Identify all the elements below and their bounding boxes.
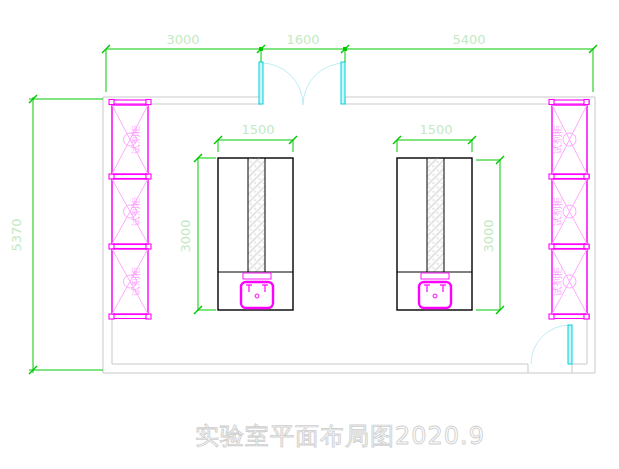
dimension-label-top-left: 3000 <box>166 32 199 47</box>
reagent-cabinet: 试剂柜 <box>552 249 587 314</box>
cabinet-column-right: 试剂柜 试剂柜 试剂柜 <box>549 100 589 320</box>
door-leaf <box>259 62 263 104</box>
dimension-bench-left-length: 3000 <box>178 154 216 314</box>
cabinet-label: 试剂柜 <box>552 197 563 227</box>
dimension-label-bench-width: 1500 <box>419 122 452 137</box>
door-leaf <box>568 325 572 364</box>
cabinet-label: 试剂柜 <box>552 125 563 155</box>
cabinet-label: 试剂柜 <box>130 197 141 227</box>
cabinet-label: 试剂柜 <box>552 267 563 297</box>
floor-plan-canvas: 试剂柜 试剂柜 试剂柜 <box>0 0 619 469</box>
dimension-label-room-height: 5370 <box>9 218 24 251</box>
cad-floor-plan: 试剂柜 试剂柜 试剂柜 <box>0 0 619 469</box>
room-walls <box>103 97 595 373</box>
dimension-top: 3000 1600 5400 <box>102 32 597 92</box>
bench-service-strip <box>248 158 265 272</box>
cabinet-label: 试剂柜 <box>130 267 141 297</box>
reagent-cabinet: 试剂柜 <box>552 105 587 174</box>
reagent-cabinet: 试剂柜 <box>112 249 148 314</box>
reagent-cabinet: 试剂柜 <box>112 105 148 174</box>
bench-service-strip <box>427 158 444 272</box>
dimension-bench-right-width: 1500 <box>393 122 476 152</box>
lab-bench-left <box>218 158 293 310</box>
dimension-label-top-right: 5400 <box>452 32 485 47</box>
dimension-bench-right-length: 3000 <box>476 156 504 314</box>
single-door <box>531 325 572 364</box>
dimension-label-top-middle: 1600 <box>286 32 319 47</box>
reagent-cabinet: 试剂柜 <box>552 179 587 244</box>
drawing-title: 实验室平面布局图2020.9 <box>195 422 485 450</box>
cabinet-column-left: 试剂柜 试剂柜 试剂柜 <box>109 100 151 320</box>
reagent-cabinet: 试剂柜 <box>112 179 148 244</box>
door-leaf <box>341 62 345 104</box>
dimension-left: 5370 <box>9 95 103 374</box>
dimension-label-bench-width: 1500 <box>241 122 274 137</box>
dimension-label-bench-length: 3000 <box>481 219 496 252</box>
cabinet-label: 试剂柜 <box>130 125 141 155</box>
lab-bench-right <box>397 158 472 310</box>
dimension-bench-left-width: 1500 <box>214 122 297 152</box>
double-door <box>259 62 345 105</box>
dimension-label-bench-length: 3000 <box>178 219 193 252</box>
